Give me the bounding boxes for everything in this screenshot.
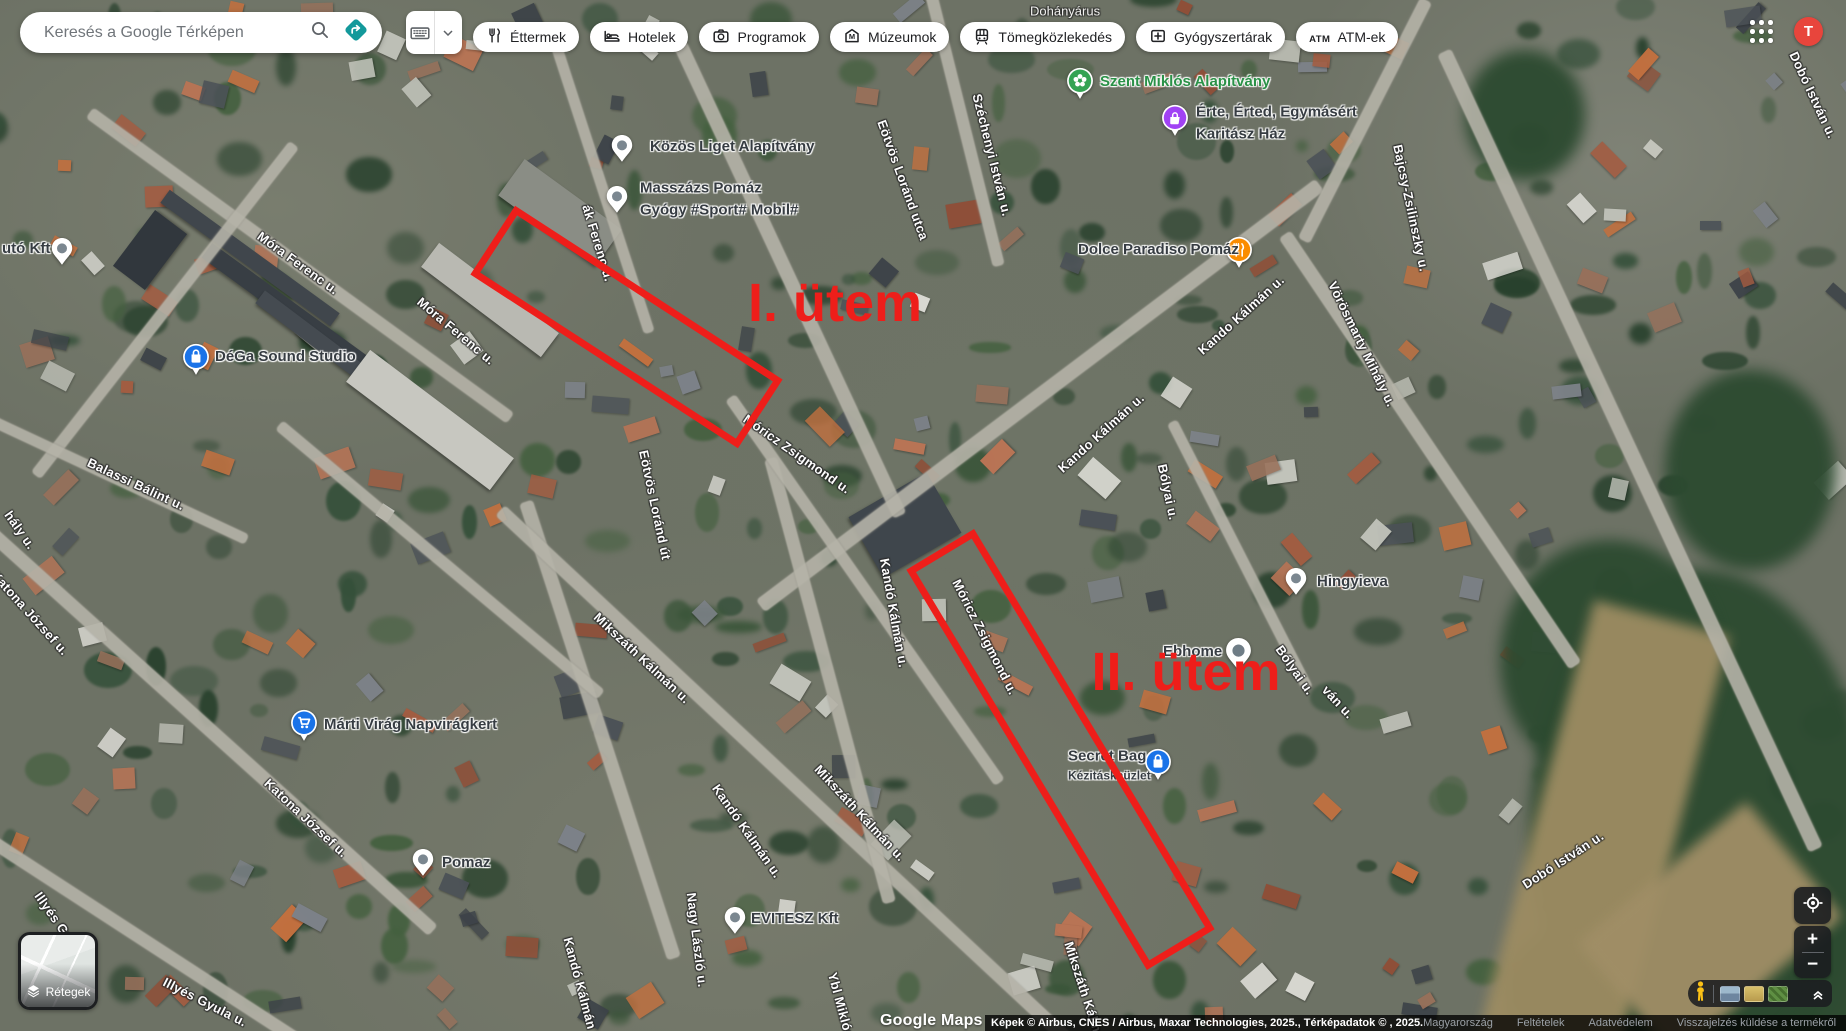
roof-blob (230, 860, 254, 887)
imagery-copyright: Képek © Airbus, CNES / Airbus, Maxar Tec… (991, 1017, 1423, 1029)
chip-label: Éttermek (510, 29, 566, 45)
poi-label-line: Dolce Paradiso Pomáz (1078, 239, 1239, 261)
tree-blob (1595, 444, 1623, 468)
roof-blob (1700, 221, 1721, 230)
roof-blob (610, 95, 624, 110)
poi-label[interactable]: Szent Miklós Alapítvány (1100, 71, 1270, 93)
tree-blob (1797, 247, 1836, 267)
tree-blob (1153, 961, 1186, 999)
tree-blob (1121, 443, 1137, 473)
poi-label[interactable]: Márti Virág Napvirágkert (324, 714, 497, 736)
street-label: Dobó István u. (1786, 49, 1839, 140)
tree-blob (556, 450, 581, 474)
tree-blob (387, 232, 424, 264)
roof-blob (753, 632, 787, 652)
tree-blob (1629, 323, 1652, 345)
roof-blob (893, 438, 925, 454)
tree-blob (1467, 436, 1504, 453)
roof-blob (776, 701, 811, 734)
roof-blob (1314, 792, 1343, 820)
footer-link-0[interactable]: Magyarország (1423, 1017, 1493, 1029)
street-label: Bajcsy-Zsilinszky u. (1390, 143, 1432, 273)
street-label: Nagy László u. (684, 892, 710, 988)
chip-label: ATM-ek (1337, 29, 1385, 45)
tree-blob (1140, 519, 1161, 539)
tree-blob (732, 950, 761, 965)
tree-blob (992, 84, 1005, 122)
roof-blob (1529, 528, 1553, 548)
footer-link-3[interactable]: Visszajelzés küldése a termékről (1677, 1017, 1836, 1029)
tree-blob (1163, 788, 1186, 824)
roof-blob (1146, 590, 1168, 612)
roof-blob (1360, 519, 1391, 551)
input-tools-button[interactable] (406, 11, 462, 54)
roof-blob (1753, 202, 1778, 228)
roof-blob (407, 61, 440, 80)
roof-blob (527, 474, 557, 499)
roof-blob (97, 728, 126, 758)
tree-blob (346, 157, 393, 192)
tree-blob (446, 786, 459, 802)
tree-blob (1108, 532, 1147, 562)
tree-blob (841, 878, 860, 892)
roof-blob (1577, 268, 1609, 294)
roof-blob (1312, 53, 1330, 67)
roof-blob (286, 628, 316, 657)
tree-blob (1354, 618, 1401, 645)
roof-blob (52, 528, 79, 555)
street-label: Ybl Miklós u. (825, 971, 861, 1031)
poi-label-line: Karitász Ház (1196, 123, 1357, 145)
tree-blob (341, 578, 355, 613)
roof-blob (72, 787, 99, 814)
tree-blob (260, 669, 297, 697)
roof-blob (58, 160, 71, 172)
category-chips: ÉttermekHotelekProgramokMMúzeumokTömegkö… (473, 22, 1398, 52)
bar-divider (1713, 985, 1714, 1003)
tree-blob (1495, 277, 1536, 296)
transit-icon (973, 27, 991, 48)
tree-blob (1164, 171, 1185, 199)
tree-blob (1616, 0, 1655, 20)
tree-blob (153, 90, 180, 115)
search-input[interactable] (42, 23, 302, 43)
tree-blob (1570, 295, 1616, 314)
phase-label: II. ütem (1091, 641, 1280, 703)
poi-pin-grey[interactable] (1285, 568, 1307, 601)
roof-blob (1443, 621, 1467, 638)
tree-blob (1468, 878, 1488, 895)
tree-blob (576, 858, 599, 895)
poi-label-line: Közös Liget Alapítvány (650, 136, 814, 158)
roof-blob (707, 475, 725, 496)
tree-blob (1031, 169, 1060, 203)
poi-pin-bag[interactable] (182, 343, 210, 383)
roof-blob (1481, 302, 1511, 332)
roof-blob (367, 469, 402, 491)
roof-blob (1566, 193, 1597, 224)
category-chip-pharmacy[interactable]: Gyógyszertárak (1136, 22, 1285, 52)
tree-blob (1136, 453, 1162, 464)
chip-label: Múzeumok (868, 29, 936, 45)
tree-blob (1130, 0, 1177, 7)
roof-blob (1603, 208, 1626, 221)
tree-blob (520, 443, 555, 477)
tree-blob (373, 962, 389, 983)
streetview-bar (1688, 980, 1832, 1007)
roof-blob (975, 385, 1009, 405)
roof-blob (1055, 924, 1084, 939)
tree-blob (1202, 763, 1219, 801)
poi-pin-grey[interactable] (412, 849, 434, 882)
roof-blob (1509, 502, 1526, 519)
chip-label: Gyógyszertárak (1174, 29, 1272, 45)
poi-label[interactable]: EVITESZ Kft (751, 908, 839, 930)
roof-blob (159, 723, 184, 743)
google-maps-watermark: Google Maps (880, 1012, 983, 1030)
roof-blob (356, 673, 383, 701)
building-block (113, 210, 187, 290)
poi-label-line: Gyógy #Sport# Mobil# (640, 199, 798, 221)
search-button[interactable] (302, 15, 338, 51)
roof-blob (1079, 509, 1117, 530)
tree-blob (768, 997, 800, 1009)
roof-blob (1217, 926, 1257, 965)
collapse-bar-button[interactable] (1810, 986, 1826, 1002)
tree-blob (206, 535, 231, 559)
category-chip-atm[interactable]: ATMATM-ek (1296, 22, 1398, 52)
roof-blob (140, 347, 167, 370)
roof-blob (506, 936, 539, 958)
tree-blob (1279, 734, 1317, 767)
roof-blob (427, 975, 455, 1003)
tree-blob (1517, 22, 1541, 39)
roof-blob (750, 71, 769, 97)
tree-blob (664, 600, 692, 632)
imagery-thumb-field[interactable] (1744, 986, 1764, 1002)
roof-blob (1647, 302, 1682, 333)
roof-blob (401, 77, 432, 108)
roof-blob (1347, 452, 1380, 483)
tree-blob (1739, 238, 1774, 266)
tree-blob (1613, 253, 1639, 268)
directions-icon (339, 13, 373, 52)
tree-blob (897, 972, 920, 1003)
tree-blob (1702, 352, 1749, 370)
footer-links: MagyarországFeltételekAdatvédelemVisszaj… (1423, 1017, 1836, 1029)
tree-blob (151, 788, 177, 819)
roof-blob (565, 382, 585, 398)
poi-label-line: EVITESZ Kft (751, 908, 839, 930)
tree-blob (1676, 261, 1692, 294)
poi-pin-grey[interactable] (611, 135, 633, 168)
zoom-out-button[interactable]: − (1794, 955, 1831, 974)
camera-icon (712, 27, 730, 48)
poi-label[interactable]: Dohányárus (1030, 3, 1100, 22)
category-chip-camera[interactable]: Programok (699, 22, 818, 52)
tree-blob (1239, 479, 1287, 513)
roof-blob (40, 360, 75, 392)
pegman-icon[interactable] (1694, 981, 1707, 1007)
roof-blob (911, 859, 935, 880)
tree-blob (1442, 613, 1472, 624)
tree-blob (1530, 180, 1553, 196)
tree-blob (368, 616, 414, 644)
tree-blob (370, 835, 413, 851)
satellite-map[interactable]: Móra Ferenc u.Móra Ferenc u.ák Ferenc u.… (0, 0, 1846, 1031)
roof-blob (43, 470, 79, 506)
poi-label[interactable]: Dolce Paradiso Pomáz (1078, 239, 1239, 261)
chevron-down-icon[interactable] (434, 11, 463, 54)
museum-icon: M (843, 27, 861, 48)
tree-blob (381, 928, 407, 965)
footer-link-2[interactable]: Adatvédelem (1589, 1017, 1653, 1029)
layers-label: Rétegek (46, 985, 91, 999)
tree-blob (250, 704, 268, 717)
tree-blob (690, 819, 733, 831)
poi-label-line: Szent Miklós Alapítvány (1100, 71, 1270, 93)
poi-pin-grey[interactable] (51, 238, 73, 271)
poi-label-line: Masszázs Pomáz (640, 177, 798, 199)
poi-label[interactable]: Közös Liget Alapítvány (650, 136, 814, 158)
roof-blob (1643, 139, 1663, 159)
roof-blob (81, 252, 105, 276)
tree-blob (123, 746, 152, 760)
tree-blob (1045, 984, 1071, 994)
search-box[interactable] (20, 12, 382, 53)
street-label: Eötvös Loránd utca (874, 118, 931, 242)
pharmacy-icon (1149, 27, 1167, 48)
roof-blob (893, 0, 926, 23)
poi-label-line: Márti Virág Napvirágkert (324, 714, 497, 736)
street-label: Eötvös Loránd út (636, 449, 674, 561)
roof-blob (1499, 799, 1523, 825)
search-icon (309, 19, 331, 46)
roof-blob (454, 760, 479, 787)
roof-blob (1439, 521, 1472, 551)
tree-blob (1428, 375, 1446, 398)
roof-blob (1240, 963, 1277, 999)
tree-blob (276, 48, 296, 86)
roof-blob (592, 396, 630, 414)
tree-blob (253, 594, 288, 633)
tree-blob (1296, 386, 1317, 405)
poi-pin-flower[interactable] (1066, 67, 1094, 107)
chip-label: Programok (737, 29, 805, 45)
category-chip-museum[interactable]: MMúzeumok (830, 22, 949, 52)
roof-blob (437, 1008, 457, 1029)
roof-blob (1411, 964, 1433, 984)
roof-blob (1383, 957, 1400, 974)
tree-blob (839, 59, 876, 86)
tree-blob (25, 753, 70, 786)
roof-blob (199, 81, 230, 109)
poi-label[interactable]: Érte, Érted, EgymásértKaritász Ház (1196, 101, 1357, 145)
tree-blob (585, 530, 630, 552)
poi-pin-grey[interactable] (606, 186, 628, 219)
atm-icon: ATM (1309, 29, 1330, 45)
zoom-divider (1802, 952, 1824, 953)
tree-blob (712, 652, 739, 667)
category-chip-hotel[interactable]: Hotelek (590, 22, 688, 52)
poi-label-line: Dohányárus (1030, 3, 1100, 22)
forest-patch (1665, 370, 1835, 570)
tree-blob (1697, 253, 1712, 289)
restaurant-icon (486, 27, 503, 47)
poi-label-line: Érte, Érted, Egymásért (1196, 101, 1357, 123)
roof-blob (691, 600, 717, 626)
layers-control[interactable]: Rétegek (18, 932, 98, 1010)
tree-blob (747, 518, 762, 539)
tree-blob (713, 244, 735, 263)
roof-blob (121, 380, 134, 393)
poi-label[interactable]: Pomaz (442, 852, 490, 874)
roof-blob (623, 416, 660, 442)
tree-blob (188, 874, 225, 892)
imagery-thumb-water[interactable] (1720, 986, 1740, 1002)
poi-pin-cart[interactable] (290, 709, 318, 749)
roof-blob (1197, 801, 1237, 822)
tree-blob (969, 342, 1011, 353)
chip-label: Hotelek (628, 29, 675, 45)
zoom-in-button[interactable]: + (1794, 930, 1831, 949)
tree-blob (1220, 197, 1232, 228)
tree-blob (346, 894, 373, 919)
tree-blob (385, 772, 400, 804)
roof-blob (1088, 576, 1124, 603)
tree-blob (1160, 209, 1202, 243)
roof-blob (914, 415, 930, 431)
street-label: Bólyai u. (1155, 463, 1182, 522)
tree-blob (1746, 316, 1759, 348)
tree-blob (1177, 306, 1218, 323)
category-chip-restaurant[interactable]: Éttermek (473, 22, 579, 52)
roof-blob (1303, 406, 1317, 416)
poi-label[interactable]: Hingyieva (1317, 571, 1388, 593)
poi-label[interactable]: utó Kft (2, 238, 50, 260)
chip-label: Tömegközlekedés (998, 29, 1112, 45)
footer-link-1[interactable]: Feltételek (1517, 1017, 1565, 1029)
roof-blob (1459, 575, 1483, 601)
roof-blob (1825, 283, 1846, 310)
account-avatar[interactable]: T (1794, 17, 1823, 46)
tree-blob (960, 794, 998, 818)
tree-blob (609, 1011, 631, 1026)
tree-blob (1233, 821, 1264, 835)
category-chip-transit[interactable]: Tömegközlekedés (960, 22, 1125, 52)
imagery-thumb-green[interactable] (1768, 986, 1788, 1002)
roof-blob (945, 199, 982, 228)
tree-blob (769, 831, 809, 856)
roof-blob (557, 824, 584, 851)
poi-pin-purse[interactable] (1161, 104, 1189, 144)
tree-blob (715, 621, 762, 634)
tree-blob (1357, 860, 1377, 872)
road-segment (1279, 231, 1581, 670)
attribution-bar: Képek © Airbus, CNES / Airbus, Maxar Tec… (985, 1015, 1846, 1031)
tree-blob (695, 493, 719, 531)
tree-blob (1204, 881, 1228, 893)
roof-blob (855, 87, 879, 106)
poi-label-line: Hingyieva (1317, 571, 1388, 593)
roof-blob (1176, 0, 1193, 15)
tree-blob (1226, 447, 1247, 481)
google-apps-icon[interactable] (1750, 20, 1774, 44)
roof-blob (113, 767, 136, 789)
directions-button[interactable] (338, 15, 374, 51)
tree-blob (713, 735, 728, 762)
roof-blob (1590, 142, 1627, 179)
roof-blob (1262, 884, 1301, 910)
hotel-icon (603, 27, 621, 48)
poi-label-line: Pomaz (442, 852, 490, 874)
tree-blob (1519, 408, 1537, 439)
roof-blob (1840, 74, 1846, 96)
my-location-icon (1802, 892, 1824, 919)
tree-blob (217, 142, 262, 176)
zoom-controls: + − (1794, 926, 1831, 978)
roof-blob (1078, 457, 1121, 499)
poi-label[interactable]: DéGa Sound Studio (215, 346, 356, 368)
roof-blob (1285, 972, 1314, 1001)
tree-blob (462, 505, 477, 539)
roof-blob (201, 450, 234, 475)
roof-blob (1481, 726, 1507, 755)
phase-label: I. ütem (748, 272, 922, 334)
roof-blob (1398, 340, 1419, 361)
tree-blob (881, 779, 907, 790)
my-location-button[interactable] (1794, 887, 1831, 924)
roof-blob (998, 227, 1024, 252)
poi-label-line: utó Kft (2, 238, 50, 260)
keyboard-icon[interactable] (406, 11, 434, 54)
tree-blob (1761, 97, 1776, 123)
poi-pin-grey[interactable] (724, 907, 746, 940)
roof-blob (124, 977, 143, 990)
street-label: Balassi Bálint u. (85, 455, 187, 513)
roof-blob (912, 146, 929, 170)
layers-icon (26, 983, 41, 1001)
tree-blob (1026, 573, 1065, 595)
poi-label[interactable]: Masszázs PomázGyógy #Sport# Mobil# (640, 177, 798, 221)
tree-blob (408, 487, 450, 513)
roof-blob (1052, 877, 1080, 893)
roof-blob (1190, 431, 1220, 447)
poi-label-line: DéGa Sound Studio (215, 346, 356, 368)
forest-patch (1465, 50, 1585, 180)
svg-text:M: M (849, 32, 855, 41)
tree-blob (678, 764, 705, 776)
roof-blob (1766, 72, 1784, 90)
road-segment (519, 500, 681, 961)
tree-blob (102, 286, 126, 322)
